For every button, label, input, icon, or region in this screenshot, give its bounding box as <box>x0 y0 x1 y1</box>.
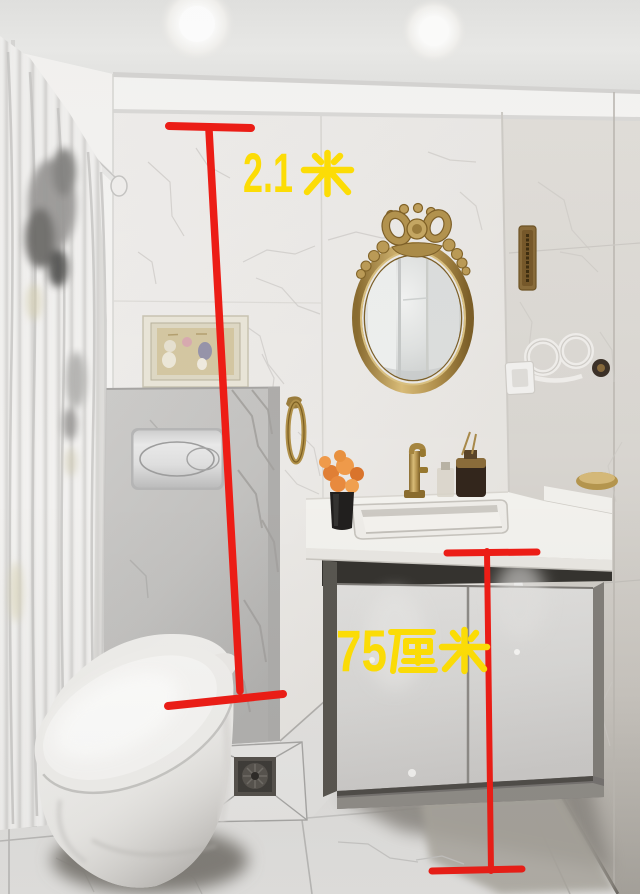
svg-text:2.1: 2.1 <box>243 141 293 204</box>
svg-text:75: 75 <box>336 619 387 684</box>
